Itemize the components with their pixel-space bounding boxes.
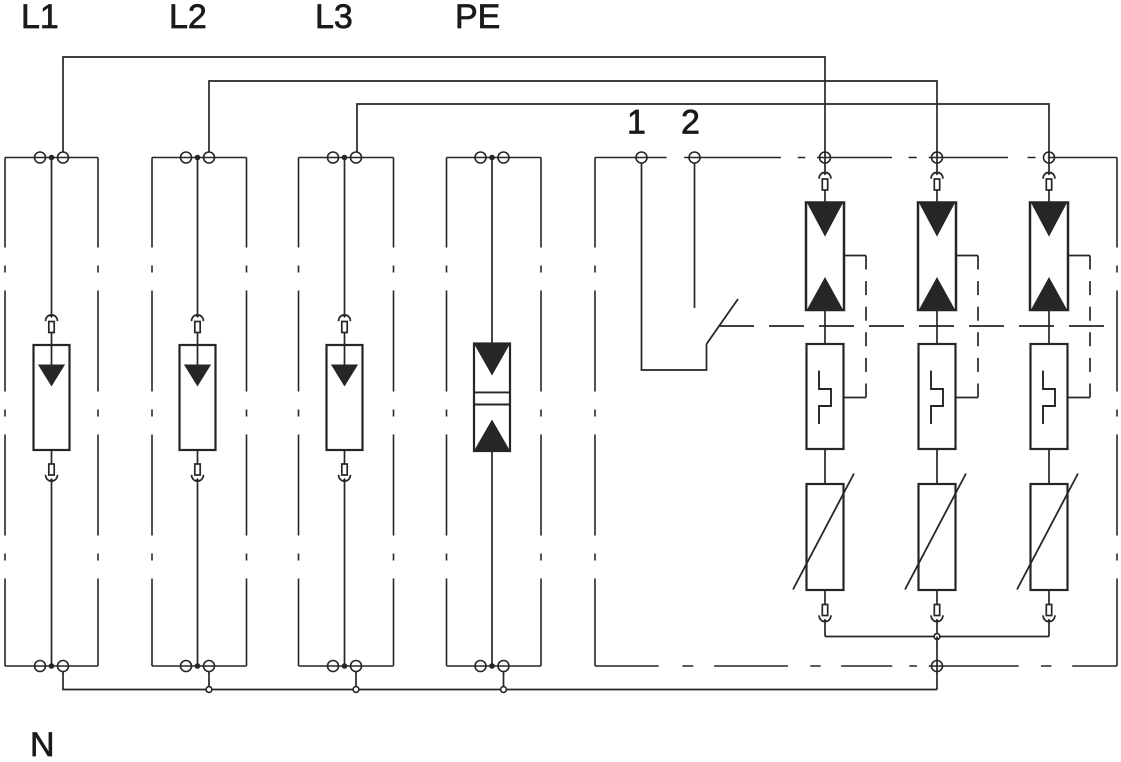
svg-text:2: 2 — [681, 104, 700, 142]
svg-text:L1: L1 — [21, 0, 59, 36]
svg-text:L3: L3 — [315, 0, 353, 36]
svg-text:N: N — [30, 726, 55, 762]
svg-text:L2: L2 — [169, 0, 207, 36]
svg-text:1: 1 — [627, 104, 646, 142]
svg-text:PE: PE — [455, 0, 500, 36]
